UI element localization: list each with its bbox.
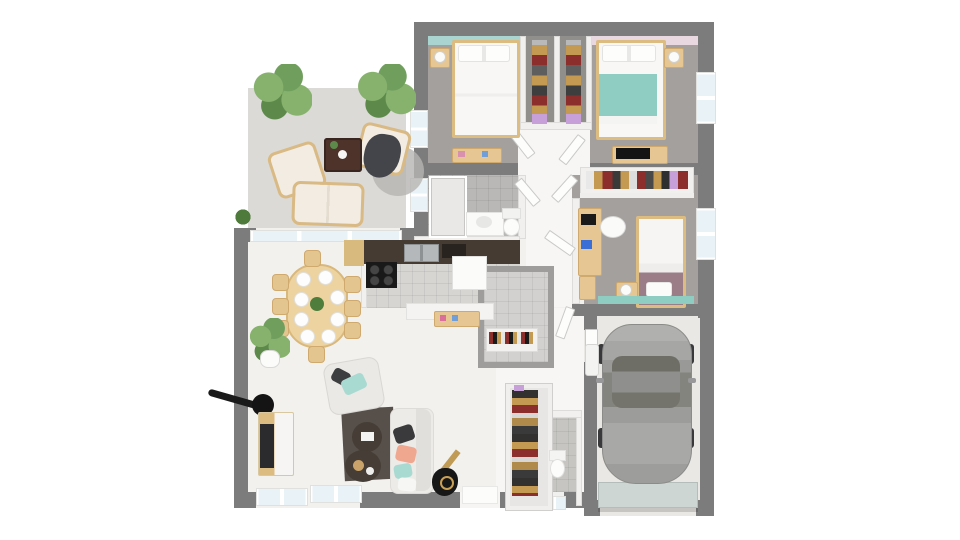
bedroom3-drawer-unit (579, 276, 596, 300)
closet-hanging-clothes (532, 40, 547, 124)
plate (318, 270, 333, 285)
shelf-item (440, 315, 446, 321)
car-mirror (596, 378, 604, 383)
wall-bedrooms-bottom-left (414, 163, 518, 175)
dining-chair (344, 276, 361, 293)
bedroom3-closet-shelf (580, 193, 694, 198)
bedroom2-pillows (602, 45, 656, 62)
bowl (366, 467, 374, 475)
window-living2 (310, 485, 362, 503)
water-heater (585, 344, 599, 376)
bowl (353, 460, 364, 471)
dining-chair (308, 346, 325, 363)
desk-item (458, 151, 465, 157)
wall-garage-bottom (696, 500, 714, 516)
wall-left (234, 228, 248, 508)
partition-closet-edge (520, 122, 592, 130)
kitchen-cabinet (344, 240, 364, 266)
bedroom3-chair (600, 216, 626, 238)
kitchen-double-sink (404, 244, 439, 262)
shower (429, 176, 467, 238)
dining-chair (344, 322, 361, 339)
tv (260, 424, 274, 468)
bedroom3-pillow (646, 282, 672, 297)
cooktop (366, 262, 397, 288)
bedroom3-laptop (581, 214, 596, 225)
plate (296, 272, 311, 287)
table-centerpiece (310, 297, 324, 311)
desk-item (581, 240, 592, 249)
sink (476, 216, 492, 228)
partition-closet (586, 36, 592, 128)
plate (330, 290, 345, 305)
wall-garage-right (700, 304, 714, 516)
shoe-cabinet-shoes (512, 390, 538, 496)
pillow (397, 477, 416, 492)
bedroom1-lamp (434, 51, 446, 63)
floor-plan-canvas (0, 0, 960, 540)
small-plant (330, 141, 338, 149)
outdoor-loveseat (291, 181, 364, 227)
shoe-cabinet-item (514, 385, 524, 391)
car-mirror (688, 378, 696, 383)
wall-garage-left (584, 316, 597, 330)
desk-item (482, 151, 488, 157)
potted-plant (250, 64, 312, 122)
garage-door (598, 482, 698, 508)
closet-hanging-clothes (566, 40, 581, 124)
pantry-stored-items (489, 332, 533, 344)
plate (321, 329, 336, 344)
guitar-soundhole (440, 476, 454, 490)
partition-closet (554, 36, 560, 128)
wall-top (414, 22, 712, 36)
partition-closet (520, 36, 526, 128)
bedroom2-blanket-fold (599, 116, 657, 124)
bedroom3-accent-strip (598, 296, 694, 304)
plate (294, 312, 309, 327)
wall-garage-left (584, 362, 597, 502)
dining-chair (272, 298, 289, 315)
dining-chair (272, 274, 289, 291)
plant-pot (260, 350, 280, 368)
window-bedroom3 (696, 208, 716, 260)
bedroom2-teal-blanket (599, 74, 657, 120)
cup (338, 150, 347, 159)
partition-wc (576, 410, 582, 506)
toilet-bowl (503, 218, 520, 236)
plate (294, 292, 309, 307)
bedroom2-lamp (668, 51, 680, 63)
bedroom3-lamp (620, 284, 632, 296)
fridge (452, 256, 487, 290)
bedroom2-keyboard (616, 148, 650, 159)
potted-plant (354, 64, 416, 120)
wc-toilet-bowl (550, 459, 565, 478)
plate (330, 312, 345, 327)
book (361, 432, 374, 441)
bedroom3-closet-clothes (586, 171, 688, 189)
dining-chair (304, 250, 321, 267)
bush (232, 206, 254, 228)
shelf-item (452, 315, 458, 321)
dining-chair (344, 300, 361, 317)
window-bedroom2 (696, 72, 716, 124)
sofa-backrest (416, 409, 431, 491)
plate (300, 329, 315, 344)
doormat (462, 486, 498, 504)
window-living1 (256, 488, 308, 506)
bedroom1-pillows (458, 45, 510, 62)
car-roof-windshield (612, 356, 680, 408)
